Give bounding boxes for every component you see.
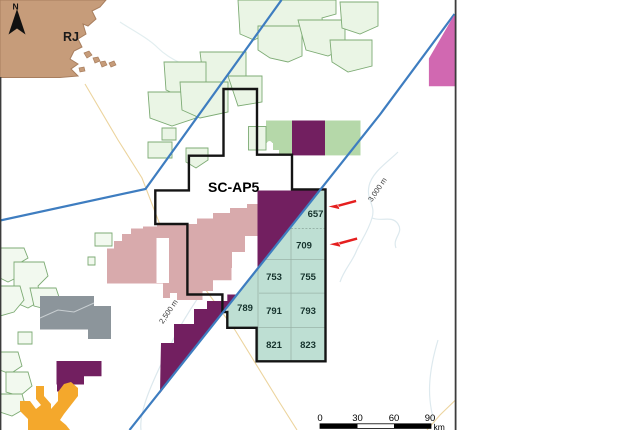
svg-text:RJ: RJ [63, 30, 79, 44]
svg-text:657: 657 [308, 209, 324, 220]
svg-text:SC-AP5: SC-AP5 [208, 179, 260, 195]
svg-text:N: N [13, 2, 19, 12]
svg-text:823: 823 [300, 340, 316, 351]
svg-text:0: 0 [317, 413, 322, 424]
svg-text:793: 793 [300, 306, 316, 317]
svg-text:791: 791 [266, 306, 283, 317]
svg-text:30: 30 [352, 413, 363, 424]
svg-text:753: 753 [266, 272, 282, 283]
svg-text:709: 709 [296, 241, 312, 252]
svg-text:789: 789 [237, 303, 253, 314]
svg-text:60: 60 [389, 413, 400, 424]
svg-text:km: km [434, 422, 445, 430]
svg-text:821: 821 [266, 340, 283, 351]
svg-text:755: 755 [300, 272, 317, 283]
